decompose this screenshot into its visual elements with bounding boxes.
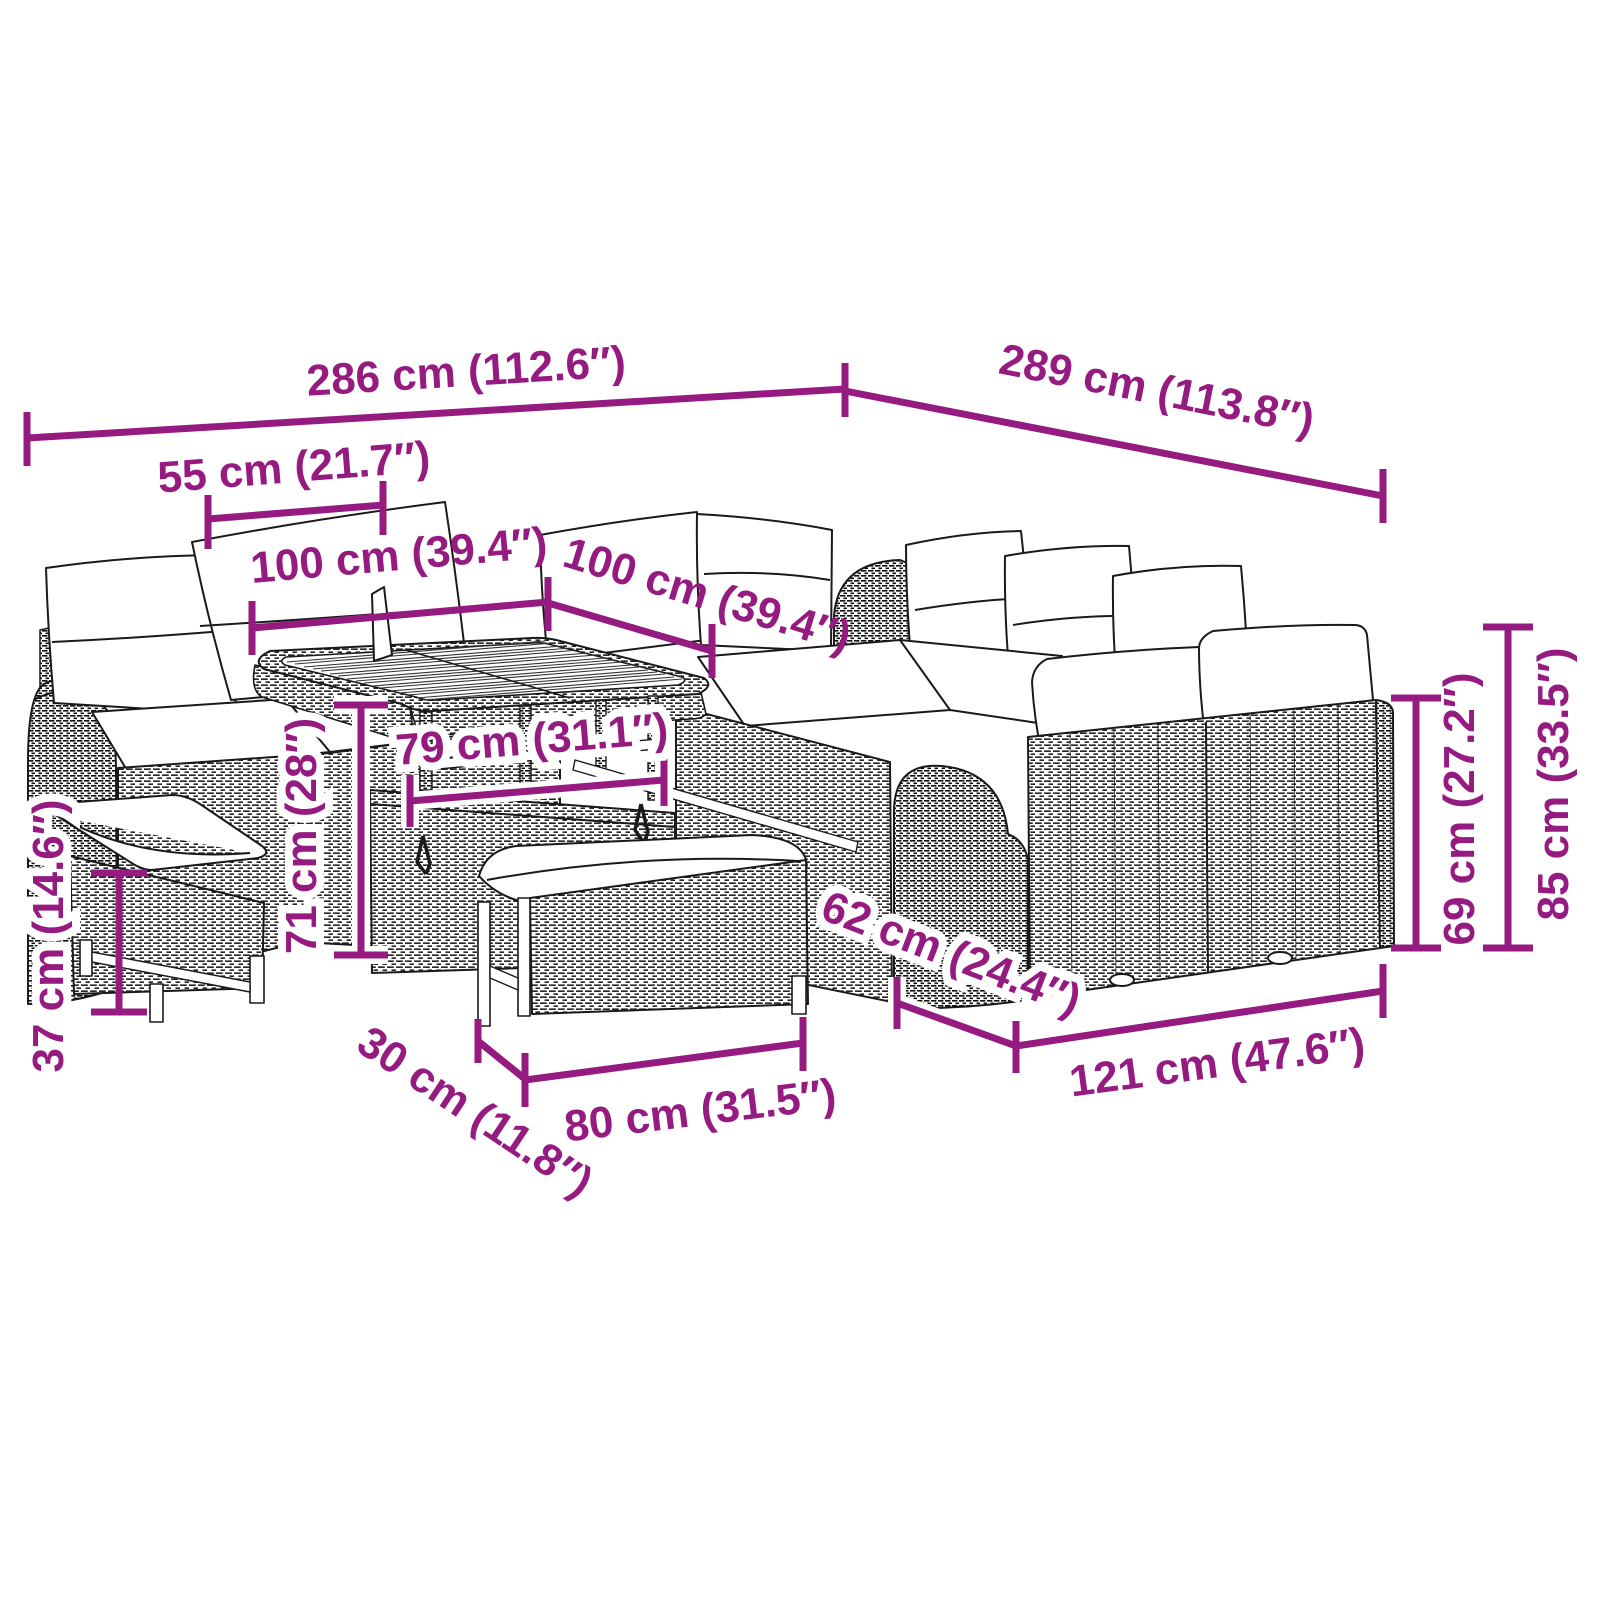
svg-text:37 cm (14.6″): 37 cm (14.6″) bbox=[24, 799, 73, 1072]
svg-text:69 cm (27.2″): 69 cm (27.2″) bbox=[1435, 672, 1484, 945]
svg-text:85 cm (33.5″): 85 cm (33.5″) bbox=[1529, 647, 1578, 920]
svg-text:71 cm (28″): 71 cm (28″) bbox=[277, 718, 326, 954]
